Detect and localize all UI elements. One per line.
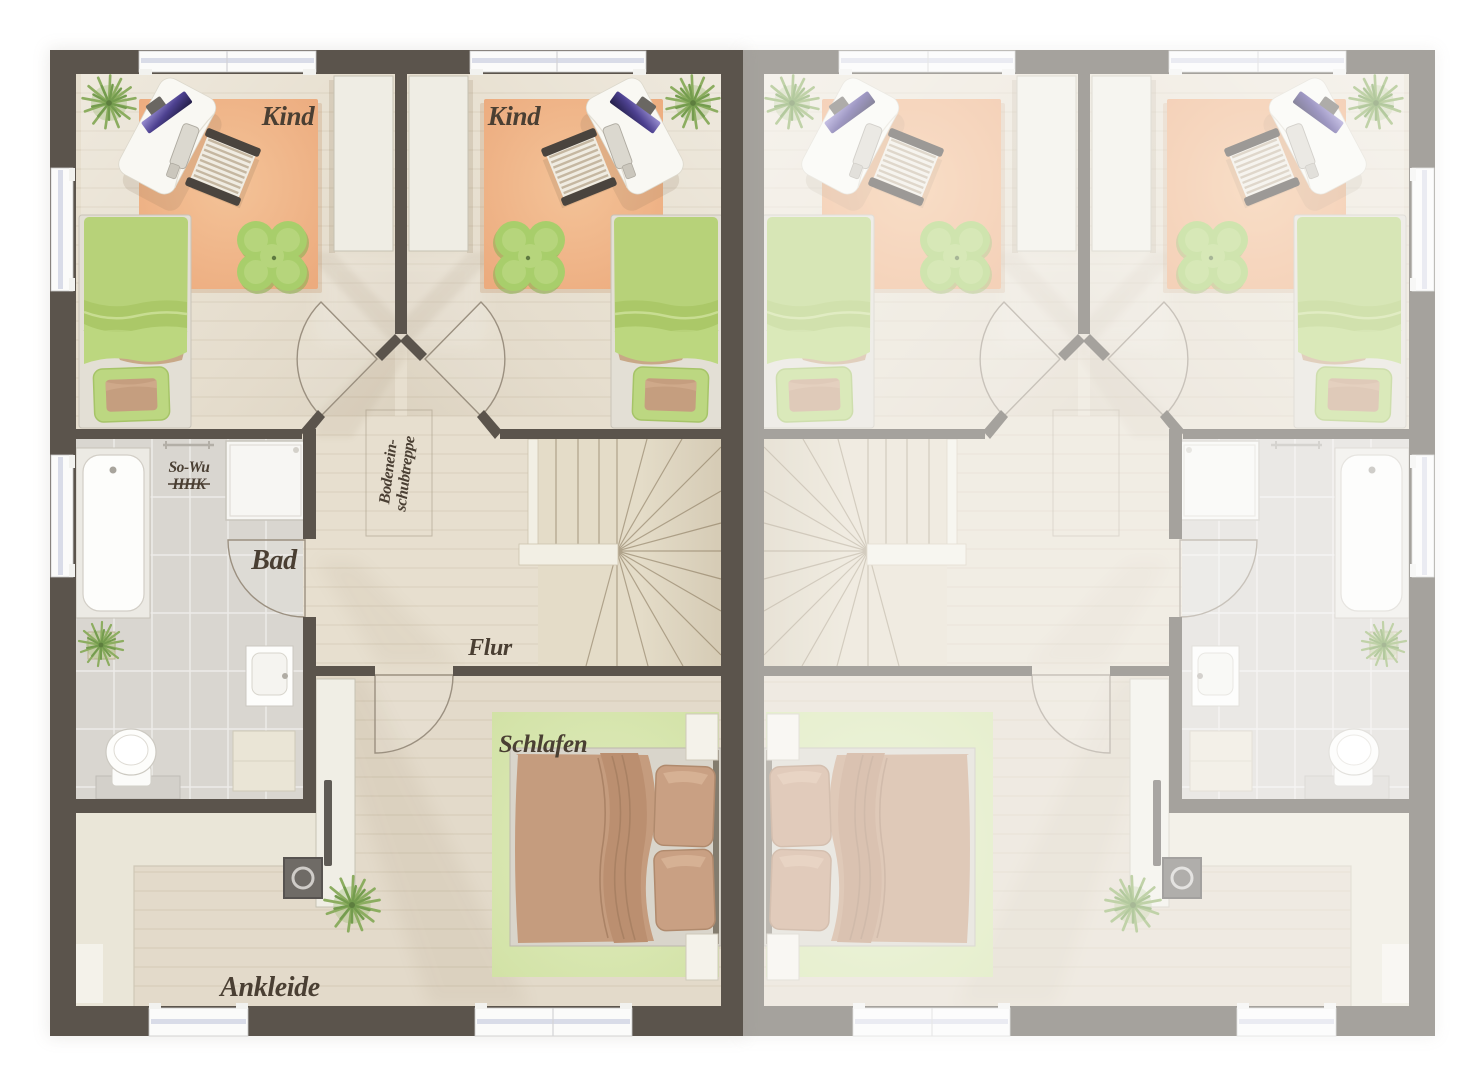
- svg-text:Schlafen: Schlafen: [499, 731, 587, 758]
- svg-text:Bad: Bad: [250, 545, 298, 576]
- svg-text:Ankleide: Ankleide: [218, 972, 319, 1003]
- svg-text:Kind: Kind: [487, 101, 541, 131]
- svg-text:So-Wu: So-Wu: [168, 459, 210, 476]
- svg-text:Kind: Kind: [261, 101, 315, 131]
- svg-text:Flur: Flur: [467, 635, 513, 661]
